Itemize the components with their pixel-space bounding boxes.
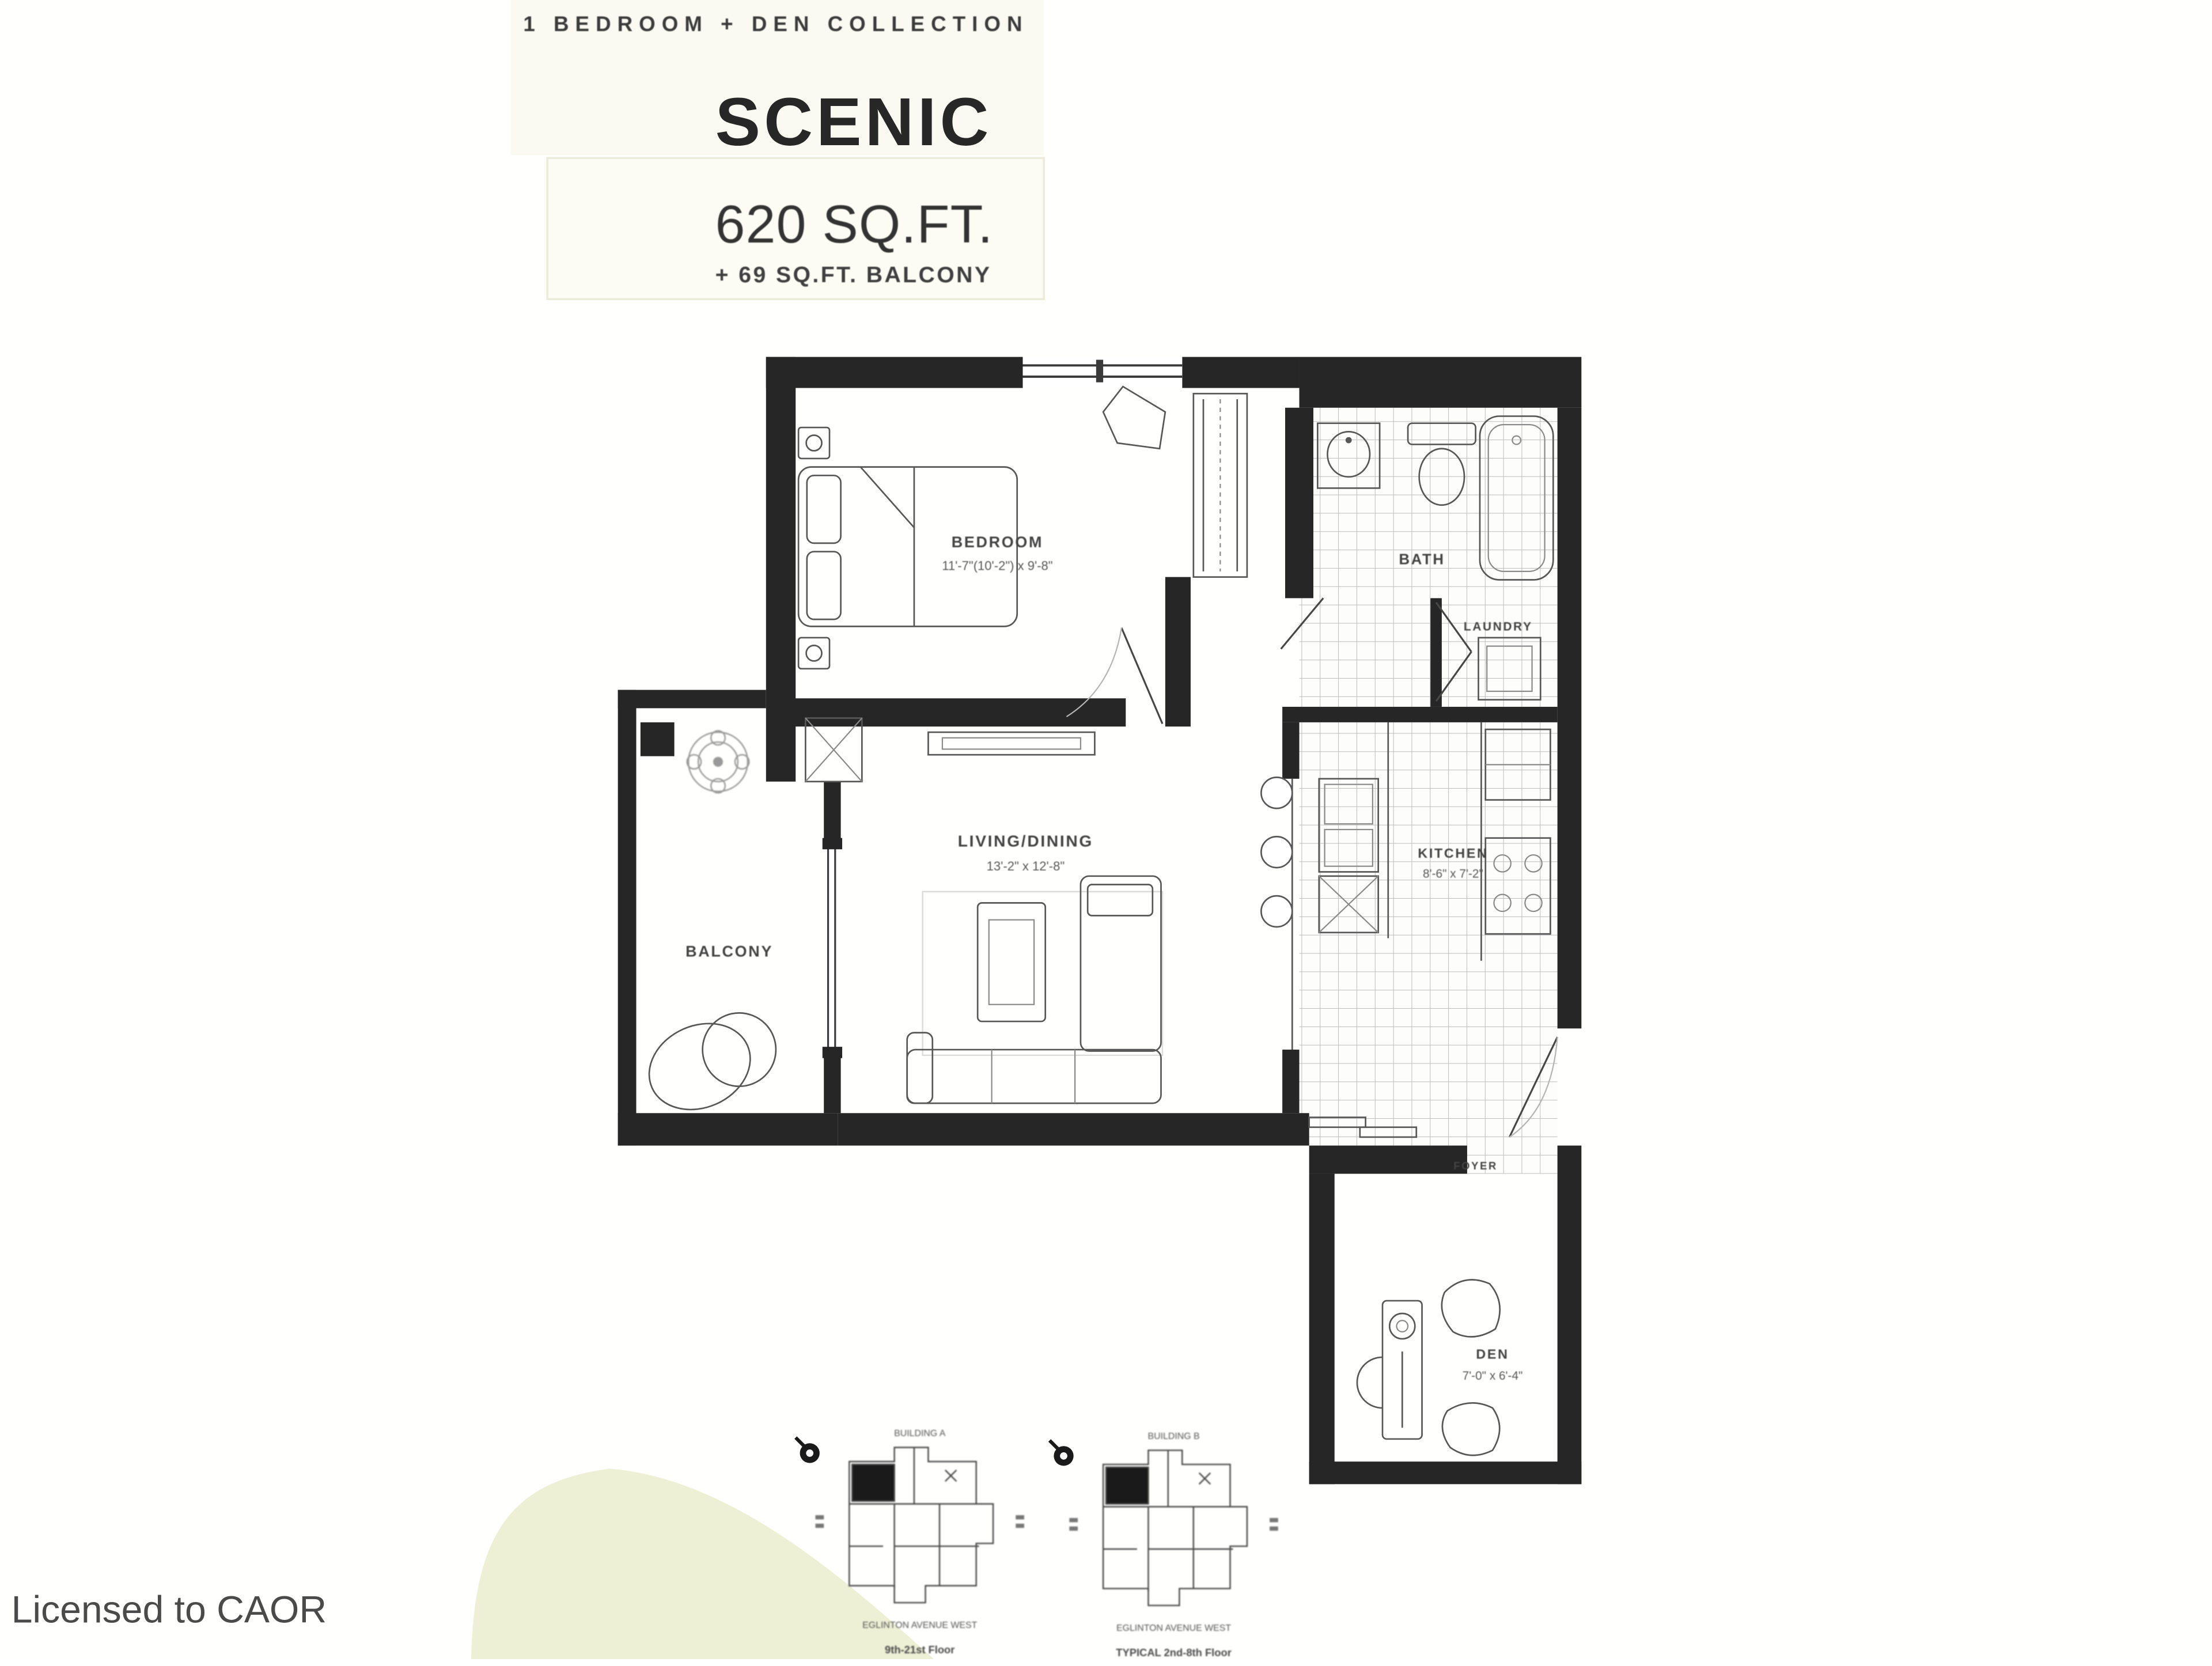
sofa-cushion-lines: [992, 1050, 1075, 1103]
keyplan-floors-label: TYPICAL 2nd-8th Floor: [1116, 1646, 1232, 1659]
guest-chair: [1442, 1403, 1499, 1455]
lamp-icon: [806, 436, 822, 451]
den-furniture: [1357, 1279, 1500, 1455]
building-footprint: [816, 1448, 1024, 1603]
balcony-table: [703, 1013, 776, 1086]
keyplan-floors-label: 9th-21st Floor: [885, 1644, 955, 1656]
floor-plan: 1 BEDROOM + DEN COLLECTION SCENIC 620 SQ…: [0, 0, 2212, 1659]
living-dims: 13'-2" x 12'-8": [987, 859, 1065, 873]
tv-console-inner: [942, 738, 1081, 749]
keyplan-top-label: BUILDING A: [894, 1429, 946, 1438]
sofa-chaise: [1081, 876, 1161, 1051]
coffee-table: [978, 903, 1046, 1021]
monitor-icon: [1389, 1313, 1415, 1339]
collection-title: 1 BEDROOM + DEN COLLECTION: [523, 12, 1028, 36]
balcony-chair: [635, 1008, 764, 1125]
plan-area: 620 SQ.FT.: [715, 194, 994, 254]
faucet-icon: [1346, 437, 1352, 444]
bedroom-closet: [1194, 393, 1247, 577]
linen-closet: [805, 718, 862, 782]
building-footprint: [1069, 1451, 1278, 1606]
bedroom-label: BEDROOM: [952, 533, 1043, 551]
plan-name: SCENIC: [715, 84, 993, 160]
bedroom-dims: 11'-7"(10'-2") x 9'-8": [942, 558, 1052, 573]
planter: [641, 722, 675, 756]
sofa-pillow: [1088, 885, 1153, 916]
kitchen-label: KITCHEN: [1418, 846, 1488, 861]
bath-floor: [1313, 408, 1558, 599]
lamp-icon: [806, 645, 822, 661]
den-label: DEN: [1476, 1346, 1509, 1361]
balcony-items: [635, 722, 776, 1125]
corner-shelf: [1103, 387, 1165, 449]
nightstand: [798, 638, 829, 669]
living-label: LIVING/DINING: [958, 832, 1093, 850]
keyplan-street-label: EGLINTON AVENUE WEST: [1116, 1623, 1231, 1633]
pillow: [807, 475, 841, 543]
compass-icon: [796, 1438, 820, 1463]
tiled-floors: [1300, 408, 1558, 1174]
living-furniture: [805, 718, 1162, 1104]
desk-chair: [1357, 1357, 1382, 1408]
balcony-door: [823, 838, 842, 1058]
balcony-label: BALCONY: [685, 942, 773, 960]
highlighted-unit: [1106, 1467, 1148, 1504]
balcony-area: + 69 SQ.FT. BALCONY: [715, 263, 992, 287]
pillow: [807, 552, 841, 620]
bath-label: BATH: [1399, 552, 1445, 568]
crest-ornament: [687, 731, 749, 793]
foyer-label: FOYER: [1453, 1160, 1498, 1172]
hall-floor: [1300, 598, 1431, 707]
compass-icon: [1050, 1440, 1074, 1466]
sofa-armrest: [907, 1033, 933, 1103]
license-text: Licensed to CAOR: [12, 1588, 327, 1631]
laundry-label: LAUNDRY: [1464, 620, 1533, 634]
kitchen-dims: 8'-6" x 7'-2": [1423, 867, 1483, 880]
bar-stools: [1261, 777, 1292, 927]
highlighted-unit: [852, 1464, 894, 1501]
den-dims: 7'-0" x 6'-4": [1463, 1369, 1523, 1383]
keyplan-street-label: EGLINTON AVENUE WEST: [862, 1620, 977, 1630]
bed-blanket-fold: [861, 467, 914, 627]
sofa-seat: [907, 1050, 1161, 1103]
brochure-page: 1 BEDROOM + DEN COLLECTION SCENIC 620 SQ…: [0, 0, 2212, 1659]
key-plan-right: BUILDING B EGLINTON AVENUE WEST TYPICAL …: [1050, 1432, 1278, 1659]
monitor-inner: [1396, 1320, 1408, 1332]
nightstand: [798, 427, 829, 459]
bedroom-window: [1023, 357, 1183, 388]
keyplan-top-label: BUILDING B: [1147, 1432, 1199, 1441]
bedroom-door-leaf: [1122, 628, 1162, 724]
coffee-table-inner: [989, 920, 1034, 1005]
tv-console: [928, 732, 1094, 755]
guest-chair: [1442, 1279, 1500, 1336]
